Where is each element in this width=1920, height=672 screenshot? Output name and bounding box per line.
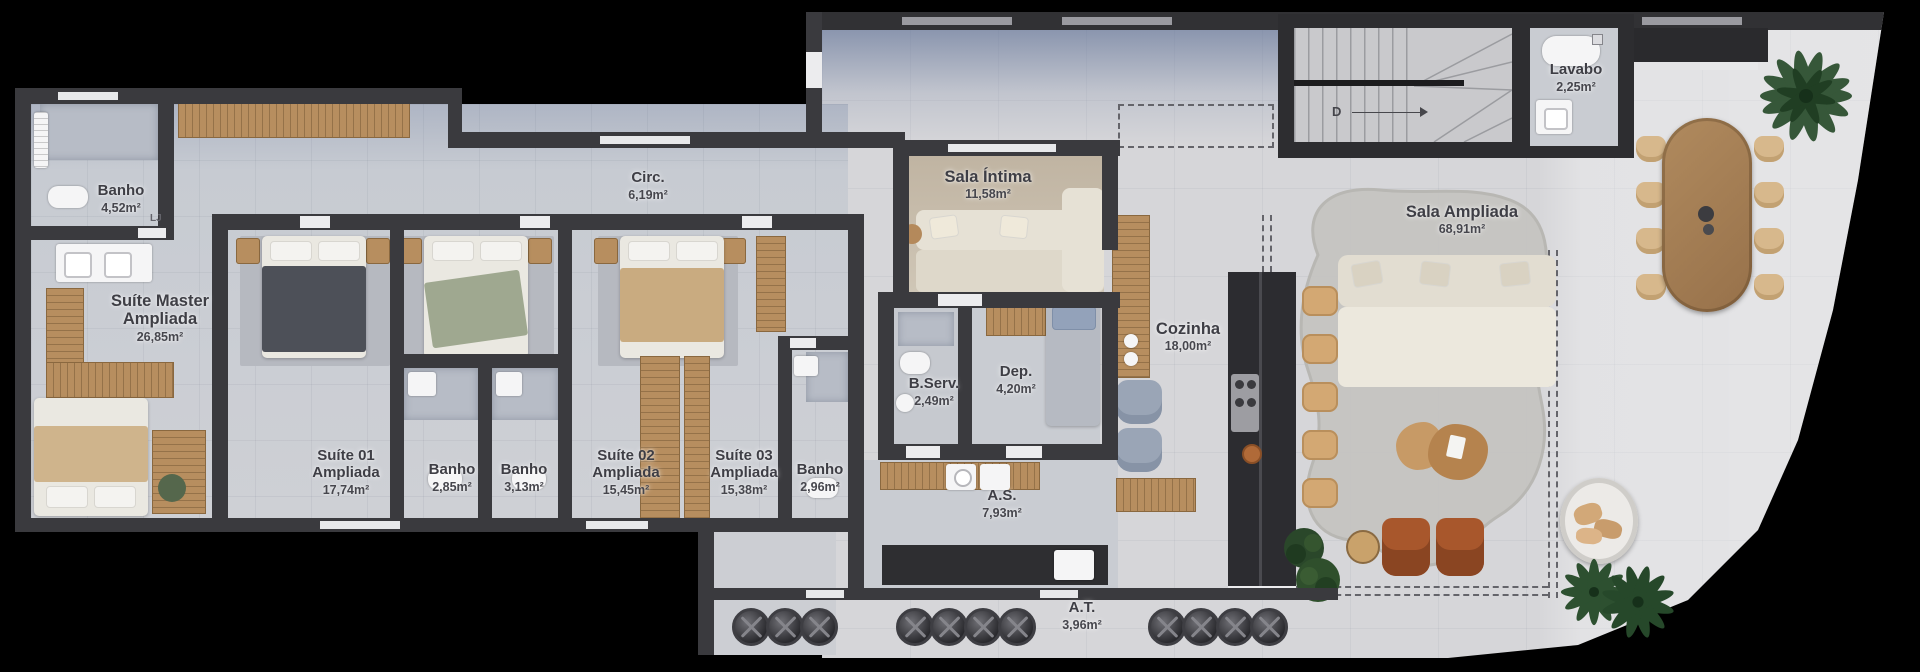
dining-chair bbox=[1754, 182, 1784, 208]
condenser-fan bbox=[896, 608, 934, 646]
wall bbox=[15, 88, 31, 532]
shelf bbox=[1700, 62, 1758, 70]
room-label-suite-01: Suíte 01 Ampliada 17,74m² bbox=[298, 448, 394, 497]
door bbox=[938, 294, 982, 306]
room-label-cozinha: Cozinha 18,00m² bbox=[1156, 320, 1220, 353]
pillow bbox=[628, 241, 670, 261]
stair-arrow-head bbox=[1420, 107, 1428, 117]
dresser bbox=[756, 236, 786, 332]
closet bbox=[46, 362, 174, 398]
room-area: 11,58m² bbox=[944, 187, 1031, 201]
pillow bbox=[270, 241, 312, 261]
pillow bbox=[929, 214, 960, 240]
room-label-banho-03: Banho 2,96m² bbox=[797, 462, 844, 494]
room-label-suite-master: Suíte Master Ampliada 26,85m² bbox=[95, 292, 225, 344]
window-sill bbox=[58, 92, 118, 100]
room-area: 15,45m² bbox=[578, 483, 674, 497]
room-area: 2,85m² bbox=[429, 480, 476, 494]
room-label-at: A.T. 3,96m² bbox=[1062, 600, 1102, 632]
desk bbox=[152, 430, 206, 514]
nightstand bbox=[528, 238, 552, 264]
room-label-banho-01: Banho 2,85m² bbox=[429, 462, 476, 494]
room-area: 7,93m² bbox=[982, 506, 1022, 520]
sink-basin bbox=[1544, 108, 1568, 130]
wall bbox=[478, 354, 492, 532]
shower-area bbox=[898, 312, 954, 346]
sofa-seat-row bbox=[1338, 307, 1556, 387]
prep-sink bbox=[1124, 334, 1138, 348]
condenser-fan bbox=[732, 608, 770, 646]
wardrobe bbox=[684, 356, 710, 532]
room-label-banho-master: Banho 4,52m² bbox=[98, 183, 145, 215]
condenser-fan bbox=[930, 608, 968, 646]
wall bbox=[212, 214, 228, 532]
toilet bbox=[48, 186, 88, 208]
pillow bbox=[1350, 260, 1384, 289]
room-label-suite-03: Suíte 03 Ampliada 15,38m² bbox=[696, 448, 792, 497]
wall bbox=[558, 214, 572, 532]
stair-direction-label: D bbox=[1332, 104, 1341, 119]
condenser-fan bbox=[964, 608, 1002, 646]
side-table bbox=[1346, 530, 1380, 564]
room-name: Circ. bbox=[628, 170, 668, 187]
blanket bbox=[620, 268, 724, 342]
room-label-sala-intima: Sala Íntima 11,58m² bbox=[944, 168, 1031, 201]
laundry-sink bbox=[1054, 550, 1094, 580]
condenser-fan bbox=[1148, 608, 1186, 646]
dining-chair bbox=[1754, 136, 1784, 162]
wall bbox=[848, 214, 864, 590]
projection-line bbox=[1262, 215, 1264, 272]
washer-door bbox=[954, 469, 972, 487]
window-sill bbox=[586, 521, 648, 529]
pouf bbox=[158, 474, 186, 502]
room-name: Suíte 02 Ampliada bbox=[578, 448, 674, 482]
condenser-fan bbox=[1216, 608, 1254, 646]
room-area: 2,96m² bbox=[797, 480, 844, 494]
sink bbox=[408, 372, 436, 396]
door bbox=[790, 338, 816, 348]
room-area: 4,20m² bbox=[996, 382, 1036, 396]
room-label-sala-ampliada: Sala Ampliada 68,91m² bbox=[1406, 203, 1518, 236]
top-wall-window bbox=[1642, 17, 1742, 25]
room-name: Suíte 01 Ampliada bbox=[298, 448, 394, 482]
room-area: 4,52m² bbox=[98, 201, 145, 215]
wall bbox=[893, 140, 909, 308]
entry-door bbox=[806, 52, 822, 88]
wall bbox=[158, 104, 174, 226]
island-seam bbox=[1259, 272, 1262, 586]
wall bbox=[1102, 292, 1118, 460]
door bbox=[742, 216, 772, 228]
door bbox=[300, 216, 330, 228]
blanket bbox=[34, 426, 148, 482]
door-mark: LJ bbox=[150, 213, 162, 224]
wall bbox=[15, 518, 864, 532]
wall bbox=[893, 292, 1120, 308]
egg-chair bbox=[1560, 478, 1638, 564]
pillow bbox=[480, 241, 522, 261]
low-cabinet bbox=[1116, 478, 1196, 512]
dining-chair bbox=[1754, 228, 1784, 254]
leather-armchair bbox=[1436, 518, 1484, 576]
dining-chair bbox=[1636, 274, 1666, 300]
nightstand bbox=[366, 238, 390, 264]
sink bbox=[64, 252, 92, 278]
window-sill bbox=[1040, 590, 1078, 598]
pillow bbox=[94, 486, 136, 508]
burner bbox=[1247, 380, 1256, 389]
burner bbox=[1247, 398, 1256, 407]
room-area: 3,13m² bbox=[501, 480, 548, 494]
toilet bbox=[900, 352, 930, 374]
pillow bbox=[676, 241, 718, 261]
drain-symbol bbox=[1592, 34, 1603, 45]
sink bbox=[104, 252, 132, 278]
room-name: Banho bbox=[98, 183, 145, 200]
pillow bbox=[1052, 306, 1096, 330]
burner bbox=[1235, 380, 1244, 389]
nightstand bbox=[594, 238, 618, 264]
pillow bbox=[1419, 260, 1452, 287]
bar-stool bbox=[1302, 478, 1338, 508]
window-sill bbox=[806, 590, 844, 598]
room-label-lavabo: Lavabo 2,25m² bbox=[1550, 62, 1603, 94]
armchair bbox=[1116, 380, 1162, 424]
sink bbox=[794, 356, 818, 376]
room-name: Banho bbox=[797, 462, 844, 479]
room-label-banho-02: Banho 3,13m² bbox=[501, 462, 548, 494]
closet bbox=[46, 288, 84, 366]
plate bbox=[1703, 224, 1714, 235]
room-area: 2,25m² bbox=[1550, 80, 1603, 94]
room-name: A.S. bbox=[982, 488, 1022, 505]
door bbox=[138, 228, 166, 238]
plate bbox=[1698, 206, 1714, 222]
room-name: Suíte Master Ampliada bbox=[95, 292, 225, 329]
room-area: 2,49m² bbox=[909, 394, 960, 408]
wall bbox=[958, 308, 972, 444]
room-area: 17,74m² bbox=[298, 483, 394, 497]
room-label-dep: Dep. 4,20m² bbox=[996, 364, 1036, 396]
room-name: Dep. bbox=[996, 364, 1036, 381]
dining-chair bbox=[1754, 274, 1784, 300]
floor-plan: LJ bbox=[0, 0, 1920, 672]
top-wall-sliding-door bbox=[902, 17, 1012, 25]
sofa-chaise bbox=[1062, 188, 1104, 292]
suite03-bed bbox=[620, 236, 724, 358]
bar-stool bbox=[1302, 382, 1338, 412]
wardrobe bbox=[640, 356, 680, 532]
nightstand bbox=[236, 238, 260, 264]
room-label-bserv: B.Serv. 2,49m² bbox=[909, 376, 960, 408]
shower-area bbox=[40, 104, 158, 160]
room-name: Sala Ampliada bbox=[1406, 203, 1518, 221]
bar-stool bbox=[1302, 430, 1338, 460]
room-name: Lavabo bbox=[1550, 62, 1603, 79]
door bbox=[906, 446, 940, 458]
terrace-cabinet bbox=[1634, 28, 1768, 62]
projection-line bbox=[1270, 215, 1272, 272]
room-name: Banho bbox=[501, 462, 548, 479]
room-name: A.T. bbox=[1062, 600, 1102, 617]
wardrobe bbox=[986, 306, 1046, 336]
condenser-fan bbox=[998, 608, 1036, 646]
projection-line bbox=[1556, 250, 1558, 598]
room-area: 15,38m² bbox=[696, 483, 792, 497]
cushion bbox=[1575, 527, 1602, 545]
pot bbox=[1242, 444, 1262, 464]
window-sill bbox=[948, 144, 1056, 152]
leather-armchair bbox=[1382, 518, 1430, 576]
pillow bbox=[318, 241, 360, 261]
room-label-suite-02: Suíte 02 Ampliada 15,45m² bbox=[578, 448, 674, 497]
wall bbox=[698, 518, 714, 655]
pillow bbox=[432, 241, 474, 261]
burner bbox=[1235, 398, 1244, 407]
service-bed bbox=[1046, 300, 1100, 426]
wall bbox=[778, 336, 792, 532]
window-sill bbox=[320, 521, 400, 529]
suite02-bed bbox=[424, 236, 528, 358]
stair-rail bbox=[1294, 80, 1464, 86]
condenser-fan bbox=[800, 608, 838, 646]
room-area: 68,91m² bbox=[1406, 222, 1518, 236]
pillow bbox=[999, 215, 1029, 240]
wall bbox=[878, 292, 894, 460]
wall bbox=[698, 588, 1338, 600]
master-bed bbox=[34, 398, 148, 516]
armchair bbox=[1116, 428, 1162, 472]
room-label-circ: Circ. 6,19m² bbox=[628, 170, 668, 202]
towel-rack bbox=[34, 112, 48, 168]
projection-outline bbox=[1118, 104, 1274, 148]
pillow bbox=[46, 486, 88, 508]
room-area: 18,00m² bbox=[1156, 339, 1220, 353]
room-name: Banho bbox=[429, 462, 476, 479]
bar-stool bbox=[1302, 286, 1338, 316]
room-label-as: A.S. 7,93m² bbox=[982, 488, 1022, 520]
room-area: 3,96m² bbox=[1062, 618, 1102, 632]
condenser-fan bbox=[766, 608, 804, 646]
throw-blanket bbox=[424, 270, 528, 349]
room-area: 26,85m² bbox=[95, 330, 225, 344]
sink bbox=[496, 372, 522, 396]
room-name: Sala Íntima bbox=[944, 168, 1031, 186]
stair-direction-arrow bbox=[1352, 112, 1420, 113]
room-name: Suíte 03 Ampliada bbox=[696, 448, 792, 482]
wall bbox=[1102, 140, 1118, 250]
condenser-fan bbox=[1182, 608, 1220, 646]
bar-stool bbox=[1302, 334, 1338, 364]
door bbox=[1006, 446, 1042, 458]
room-area: 6,19m² bbox=[628, 188, 668, 202]
room-name: B.Serv. bbox=[909, 376, 960, 393]
blanket bbox=[262, 266, 366, 352]
top-wall-sliding-door bbox=[1062, 17, 1172, 25]
nightstand bbox=[722, 238, 746, 264]
door bbox=[520, 216, 550, 228]
condenser-fan bbox=[1250, 608, 1288, 646]
prep-sink bbox=[1124, 352, 1138, 366]
pillow bbox=[1499, 260, 1531, 287]
suite01-bed bbox=[262, 236, 366, 358]
room-name: Cozinha bbox=[1156, 320, 1220, 338]
window-sill bbox=[600, 136, 690, 144]
